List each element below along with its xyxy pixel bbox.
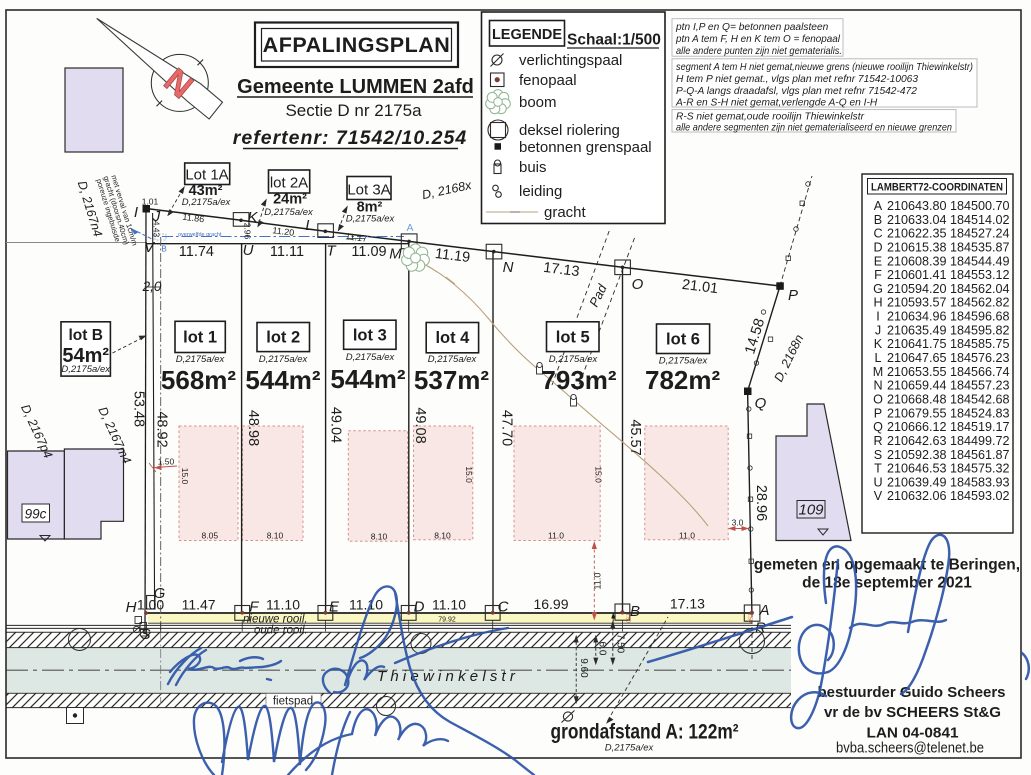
svg-text:P-Q-A langs draadafsl, vlgs pl: P-Q-A langs draadafsl, vlgs plan met ref… bbox=[676, 86, 917, 97]
svg-text:8.10: 8.10 bbox=[434, 531, 451, 541]
svg-text:544m²: 544m² bbox=[245, 365, 320, 395]
svg-text:210635.49 184595.82: 210635.49 184595.82 bbox=[887, 323, 1010, 337]
svg-text:C: C bbox=[498, 599, 509, 616]
svg-text:210646.53 184575.32: 210646.53 184575.32 bbox=[887, 462, 1010, 476]
svg-text:210608.39 184544.49: 210608.39 184544.49 bbox=[887, 254, 1010, 268]
svg-text:lot 2A: lot 2A bbox=[270, 175, 308, 192]
svg-text:1.50: 1.50 bbox=[747, 613, 753, 623]
svg-text:A: A bbox=[406, 222, 413, 234]
svg-text:3.0: 3.0 bbox=[732, 518, 744, 528]
svg-text:210615.38 184535.87: 210615.38 184535.87 bbox=[887, 241, 1010, 255]
svg-text:11.09: 11.09 bbox=[351, 244, 386, 260]
svg-text:A: A bbox=[874, 199, 883, 213]
svg-text:Lot 3A: Lot 3A bbox=[347, 182, 390, 199]
svg-text:11.10: 11.10 bbox=[266, 597, 300, 613]
svg-text:210593.57 184562.82: 210593.57 184562.82 bbox=[887, 296, 1010, 310]
svg-text:15.0: 15.0 bbox=[464, 466, 474, 483]
svg-text:210633.04 184514.02: 210633.04 184514.02 bbox=[887, 213, 1010, 227]
svg-text:210634.96 184596.68: 210634.96 184596.68 bbox=[887, 310, 1010, 324]
svg-text:lot 6: lot 6 bbox=[666, 331, 700, 349]
svg-text:ptn A tem F, H en K tem O = fe: ptn A tem F, H en K tem O = fenopaal bbox=[675, 34, 841, 45]
svg-text:P: P bbox=[788, 287, 798, 304]
svg-text:A-R en S-H niet gemat,verlengd: A-R en S-H niet gemat,verlengde A-Q en I… bbox=[675, 98, 878, 109]
svg-text:210659.44 184557.23: 210659.44 184557.23 bbox=[887, 379, 1010, 393]
svg-text:109: 109 bbox=[798, 502, 824, 519]
svg-text:S: S bbox=[874, 448, 882, 462]
svg-text:54m²: 54m² bbox=[62, 345, 109, 367]
svg-text:Lot 1A: Lot 1A bbox=[185, 167, 228, 184]
svg-text:210647.65 184576.23: 210647.65 184576.23 bbox=[887, 351, 1010, 365]
svg-text:I: I bbox=[134, 204, 138, 221]
svg-text:11.11: 11.11 bbox=[270, 244, 304, 260]
svg-text:betonnen grenspaal: betonnen grenspaal bbox=[519, 139, 652, 156]
svg-text:544m²: 544m² bbox=[330, 364, 405, 394]
svg-text:45.57: 45.57 bbox=[627, 419, 643, 455]
svg-text:D,2175a/ex: D,2175a/ex bbox=[176, 354, 226, 365]
svg-text:verlichtingspaal: verlichtingspaal bbox=[519, 52, 622, 69]
svg-text:L: L bbox=[874, 351, 881, 365]
svg-text:210632.06 184593.02: 210632.06 184593.02 bbox=[887, 489, 1010, 503]
svg-text:210639.49 184583.93: 210639.49 184583.93 bbox=[887, 475, 1010, 489]
svg-text:210601.41 184553.12: 210601.41 184553.12 bbox=[887, 268, 1010, 282]
svg-text:A: A bbox=[758, 602, 769, 619]
svg-text:7.50: 7.50 bbox=[615, 634, 626, 654]
svg-text:210642.63 184499.72: 210642.63 184499.72 bbox=[887, 434, 1010, 448]
svg-text:15.0: 15.0 bbox=[594, 466, 604, 483]
svg-text:210679.55 184524.83: 210679.55 184524.83 bbox=[887, 406, 1010, 420]
svg-text:D,2175a/ex: D,2175a/ex bbox=[259, 354, 309, 365]
svg-text:Schaal:1/500: Schaal:1/500 bbox=[567, 32, 661, 49]
svg-text:9.60: 9.60 bbox=[578, 658, 589, 678]
svg-text:G: G bbox=[154, 585, 166, 602]
svg-text:boom: boom bbox=[519, 94, 557, 111]
svg-text:H tem P niet gemat., vlgs plan: H tem P niet gemat., vlgs plan met refnr… bbox=[676, 74, 918, 85]
svg-text:O: O bbox=[873, 393, 883, 407]
svg-text:47.70: 47.70 bbox=[499, 410, 515, 446]
svg-text:F: F bbox=[874, 268, 882, 282]
svg-text:15.0: 15.0 bbox=[180, 468, 190, 485]
svg-text:deksel riolering: deksel riolering bbox=[519, 122, 620, 139]
svg-text:8.10: 8.10 bbox=[267, 531, 284, 541]
svg-text:C: C bbox=[873, 227, 882, 241]
svg-text:11.10: 11.10 bbox=[349, 597, 383, 613]
svg-text:D,2175a/ex: D,2175a/ex bbox=[605, 743, 655, 754]
svg-text:J: J bbox=[875, 323, 881, 337]
svg-text:K: K bbox=[874, 337, 883, 351]
svg-text:lot 5: lot 5 bbox=[556, 329, 590, 347]
svg-text:2,0: 2,0 bbox=[142, 279, 162, 294]
svg-text:N: N bbox=[873, 379, 882, 393]
svg-text:210622.35 184527.24: 210622.35 184527.24 bbox=[887, 227, 1010, 241]
svg-text:43m²: 43m² bbox=[189, 183, 223, 199]
svg-text:49.04: 49.04 bbox=[328, 407, 344, 443]
svg-text:568m²: 568m² bbox=[161, 365, 236, 395]
svg-text:Gemeente LUMMEN 2afd: Gemeente LUMMEN 2afd bbox=[237, 76, 474, 98]
svg-text:O: O bbox=[632, 276, 644, 293]
svg-text:16.99: 16.99 bbox=[533, 596, 568, 612]
svg-text:8.05: 8.05 bbox=[202, 531, 219, 541]
svg-text:oude rooil.: oude rooil. bbox=[254, 625, 308, 637]
svg-text:1.01: 1.01 bbox=[142, 197, 159, 207]
svg-text:T: T bbox=[874, 462, 882, 476]
svg-text:793m²: 793m² bbox=[541, 365, 616, 395]
svg-text:11.0: 11.0 bbox=[593, 573, 603, 590]
svg-text:B: B bbox=[874, 213, 882, 227]
svg-text:refertenr: 71542/10.254: refertenr: 71542/10.254 bbox=[233, 127, 467, 149]
svg-text:G: G bbox=[873, 282, 883, 296]
svg-text:210653.55 184566.74: 210653.55 184566.74 bbox=[887, 365, 1010, 379]
svg-text:bvba.scheers@telenet.be: bvba.scheers@telenet.be bbox=[836, 741, 984, 757]
svg-text:U: U bbox=[873, 475, 882, 489]
svg-text:99c: 99c bbox=[25, 507, 47, 522]
svg-text:lot B: lot B bbox=[68, 327, 102, 344]
svg-text:8m²: 8m² bbox=[357, 200, 383, 216]
svg-text:210668.48 184542.68: 210668.48 184542.68 bbox=[887, 393, 1010, 407]
svg-text:lot 1: lot 1 bbox=[183, 329, 217, 347]
svg-text:210641.75 184585.75: 210641.75 184585.75 bbox=[887, 337, 1010, 351]
svg-text:lot 2: lot 2 bbox=[266, 329, 300, 347]
svg-text:48.98: 48.98 bbox=[245, 410, 261, 446]
svg-text:fietspad: fietspad bbox=[273, 696, 313, 708]
svg-text:D: D bbox=[414, 599, 425, 616]
svg-text:782m²: 782m² bbox=[645, 365, 720, 395]
svg-text:11.10: 11.10 bbox=[432, 597, 466, 613]
svg-text:buis: buis bbox=[519, 159, 547, 176]
svg-text:N: N bbox=[503, 259, 514, 276]
svg-text:fenopaal: fenopaal bbox=[519, 72, 577, 89]
svg-text:Sectie D nr 2175a: Sectie D nr 2175a bbox=[285, 101, 422, 120]
svg-text:D: D bbox=[873, 241, 882, 255]
svg-text:overwelfde gracht: overwelfde gracht bbox=[178, 232, 222, 238]
svg-text:D,2175a/ex: D,2175a/ex bbox=[428, 354, 478, 365]
svg-text:M: M bbox=[873, 365, 884, 379]
svg-text:lot 4: lot 4 bbox=[435, 329, 470, 347]
svg-text:53.48: 53.48 bbox=[131, 391, 147, 427]
svg-text:1.50: 1.50 bbox=[625, 613, 631, 623]
svg-text:LAMBERT72-COORDINATEN: LAMBERT72-COORDINATEN bbox=[871, 182, 1003, 194]
svg-text:11.47: 11.47 bbox=[182, 597, 216, 613]
svg-text:8.10: 8.10 bbox=[371, 532, 388, 542]
svg-text:79.92: 79.92 bbox=[438, 617, 456, 624]
svg-text:R: R bbox=[873, 434, 882, 448]
svg-text:vr de bv SCHEERS St&G: vr de bv SCHEERS St&G bbox=[824, 704, 1001, 721]
svg-text:H: H bbox=[126, 599, 137, 616]
svg-text:V: V bbox=[874, 489, 883, 503]
svg-text:B: B bbox=[161, 245, 166, 254]
svg-text:24m²: 24m² bbox=[273, 192, 307, 208]
svg-text:D,2175a/ex: D,2175a/ex bbox=[346, 352, 396, 363]
svg-text:leiding: leiding bbox=[519, 183, 562, 200]
svg-text:ptn I,P en Q= betonnen paalste: ptn I,P en Q= betonnen paalsteen bbox=[675, 22, 829, 33]
svg-text:LEGENDE: LEGENDE bbox=[492, 27, 562, 43]
svg-text:17.13: 17.13 bbox=[670, 596, 705, 612]
svg-text:1.50: 1.50 bbox=[158, 457, 175, 467]
svg-text:AFPALINGSPLAN: AFPALINGSPLAN bbox=[263, 33, 451, 57]
svg-text:S: S bbox=[140, 626, 150, 643]
svg-text:bestuurder Guido Scheers: bestuurder Guido Scheers bbox=[818, 684, 1006, 701]
svg-text:U: U bbox=[243, 242, 254, 259]
svg-text:P: P bbox=[874, 406, 882, 420]
svg-text:D,2175a/ex: D,2175a/ex bbox=[549, 354, 599, 365]
svg-text:6.0: 6.0 bbox=[597, 642, 608, 656]
svg-text:11.0: 11.0 bbox=[548, 531, 564, 541]
svg-text:11.0: 11.0 bbox=[679, 531, 695, 541]
svg-text:segment A tem H niet gemat,nie: segment A tem H niet gemat,nieuwe grens … bbox=[676, 62, 973, 73]
svg-text:210643.80 184500.70: 210643.80 184500.70 bbox=[887, 199, 1010, 213]
svg-text:11.74: 11.74 bbox=[179, 244, 214, 260]
svg-text:4.43: 4.43 bbox=[152, 221, 162, 238]
svg-text:H: H bbox=[873, 296, 882, 310]
svg-text:M: M bbox=[389, 246, 402, 263]
svg-text:210666.12 184519.17: 210666.12 184519.17 bbox=[887, 420, 1010, 434]
svg-text:210594.20 184562.04: 210594.20 184562.04 bbox=[887, 282, 1010, 296]
svg-text:lot 3: lot 3 bbox=[353, 327, 387, 345]
svg-text:2.96: 2.96 bbox=[243, 223, 253, 240]
svg-text:48.92: 48.92 bbox=[154, 411, 170, 447]
svg-text:Q: Q bbox=[873, 420, 883, 434]
svg-text:Q: Q bbox=[755, 395, 767, 412]
svg-text:gracht: gracht bbox=[544, 204, 587, 221]
svg-text:E: E bbox=[874, 254, 882, 268]
svg-text:gemeten en opgemaakt te Bering: gemeten en opgemaakt te Beringen, bbox=[754, 557, 1020, 574]
svg-text:I: I bbox=[876, 310, 880, 324]
svg-text:B: B bbox=[630, 603, 640, 620]
svg-text:Thiewinkelstr: Thiewinkelstr bbox=[377, 668, 519, 685]
svg-text:49.08: 49.08 bbox=[412, 407, 428, 443]
svg-text:LAN 04-0841: LAN 04-0841 bbox=[867, 725, 959, 742]
svg-text:L: L bbox=[305, 217, 313, 234]
svg-text:537m²: 537m² bbox=[414, 365, 489, 395]
svg-text:alle andere punten zijn niet g: alle andere punten zijn niet gemateriali… bbox=[676, 46, 842, 57]
svg-text:28.96: 28.96 bbox=[753, 485, 769, 521]
svg-text:E: E bbox=[329, 599, 340, 616]
svg-text:R-S niet gemat,oude rooilijn T: R-S niet gemat,oude rooilijn Thiewinkels… bbox=[676, 112, 865, 123]
svg-text:210592.38 184561.87: 210592.38 184561.87 bbox=[887, 448, 1010, 462]
svg-text:grondafstand A: 122m²: grondafstand A: 122m² bbox=[551, 721, 739, 744]
svg-text:alle andere segmenten zijn nie: alle andere segmenten zijn niet gemateri… bbox=[676, 123, 952, 134]
